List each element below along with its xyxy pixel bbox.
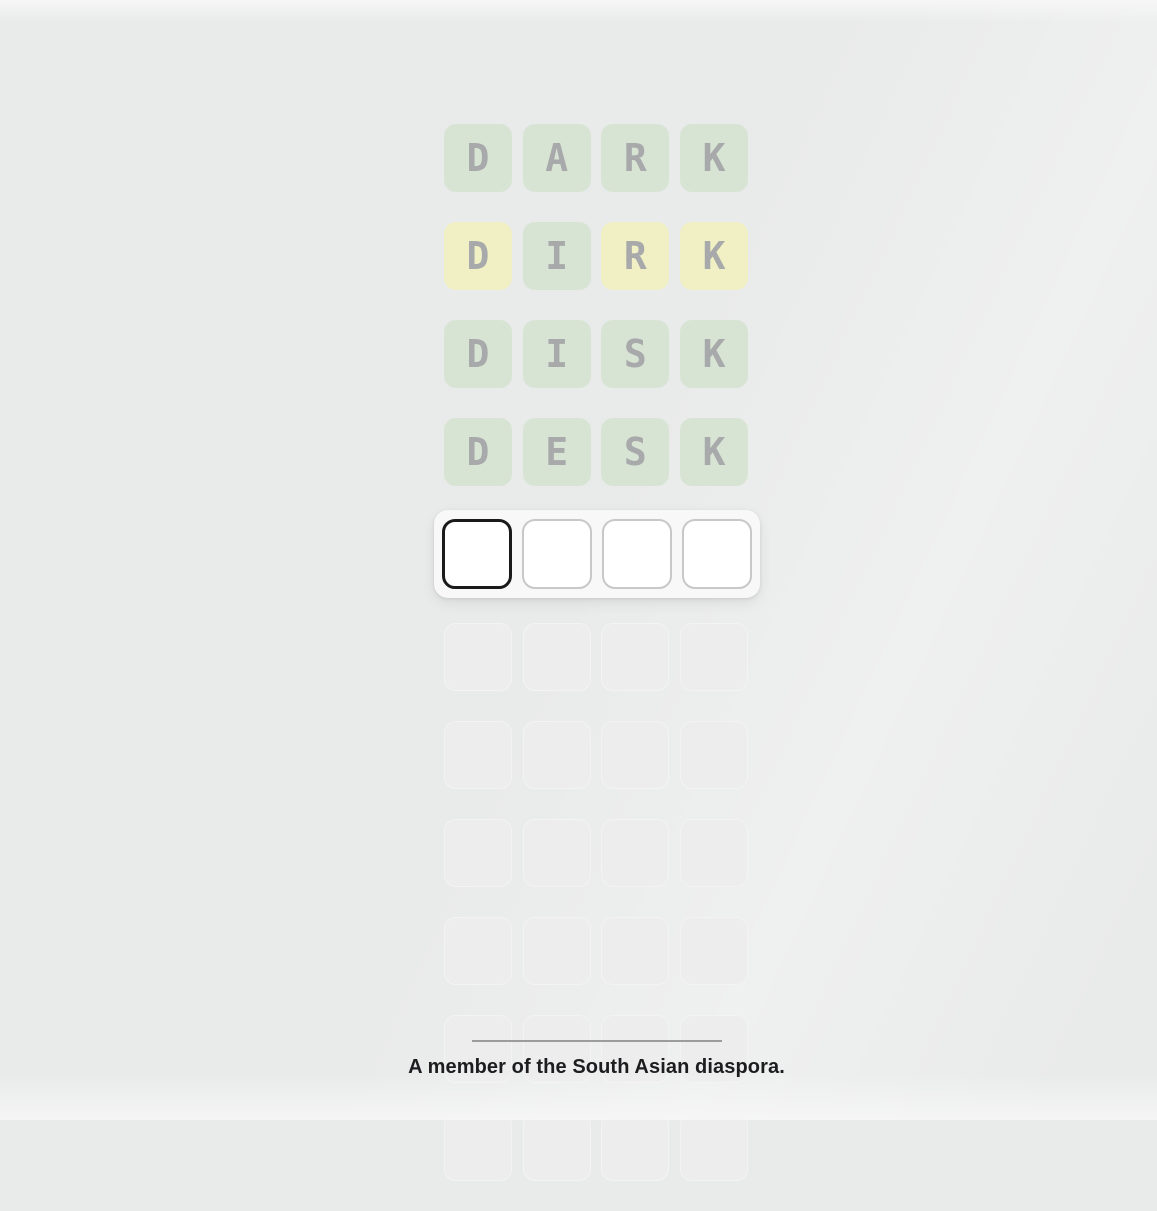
letter-tile: K [680,320,748,388]
future-tile [601,1113,669,1181]
clue-text: A member of the South Asian diaspora. [18,1056,1157,1078]
future-row [444,819,748,887]
letter-tile: D [444,320,512,388]
letter-tile: S [601,320,669,388]
future-tile [444,623,512,691]
future-tile [680,623,748,691]
active-input-tile[interactable] [522,519,592,589]
guess-row: DESK [444,418,748,486]
guess-row: DISK [444,320,748,388]
future-row [444,1113,748,1181]
future-tile [523,623,591,691]
letter-tile: D [444,124,512,192]
future-tile [601,623,669,691]
clue-panel: A member of the South Asian diaspora. [18,1040,1157,1078]
future-tile [523,721,591,789]
letter-tile: I [523,320,591,388]
future-tile [601,917,669,985]
future-tile [444,819,512,887]
future-tile [523,819,591,887]
letter-tile: R [601,124,669,192]
letter-tile: D [444,222,512,290]
future-tile [444,721,512,789]
letter-tile: K [680,124,748,192]
future-tile [680,917,748,985]
future-tile [444,917,512,985]
active-input-tile[interactable] [682,519,752,589]
guess-row: DARK [444,124,748,192]
letter-tile: A [523,124,591,192]
letter-tile: I [523,222,591,290]
future-row [444,917,748,985]
top-fade-overlay [0,0,1157,22]
letter-tile: R [601,222,669,290]
future-row [444,721,748,789]
letter-tile: K [680,222,748,290]
future-tile [444,1113,512,1181]
letter-tile: D [444,418,512,486]
clue-divider [472,1040,722,1042]
future-tile [601,819,669,887]
future-tile [680,819,748,887]
future-tile [523,917,591,985]
letter-tile: S [601,418,669,486]
letter-tile: K [680,418,748,486]
future-row [444,623,748,691]
active-input-tile[interactable] [442,519,512,589]
future-tile [680,721,748,789]
active-input-tile[interactable] [602,519,672,589]
future-tile [680,1113,748,1181]
guess-row: DIRK [444,222,748,290]
active-row [434,510,760,598]
letter-tile: E [523,418,591,486]
future-tile [601,721,669,789]
future-tile [523,1113,591,1181]
